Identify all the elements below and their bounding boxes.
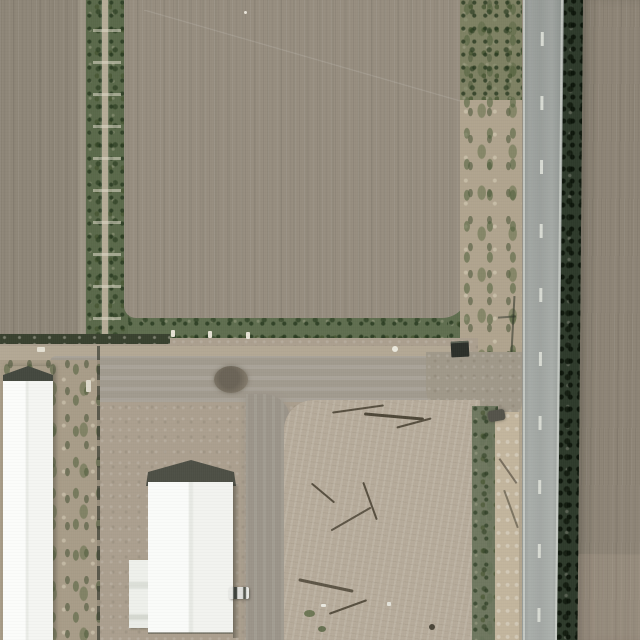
debris-twig: [332, 404, 384, 413]
standpipe: [246, 332, 250, 339]
white-post: [86, 380, 91, 392]
brush-mound: [214, 366, 248, 393]
building-south-edge: [148, 632, 233, 634]
standpipe: [171, 330, 175, 337]
aerial-photo: [0, 0, 640, 640]
farm-building: [146, 460, 236, 638]
debris-twig: [362, 482, 378, 520]
truck: [229, 587, 249, 599]
debris-twig: [298, 578, 353, 592]
white-barrel: [392, 346, 398, 352]
building-east-shadow: [233, 484, 239, 638]
debris-dark-dot: [429, 624, 435, 630]
pad-green-speck: [318, 626, 326, 632]
pad-white-speck: [387, 602, 391, 606]
scraped-pad: [284, 400, 480, 640]
barn: [3, 366, 53, 640]
ditch-line-dark: [0, 334, 170, 344]
debris-twig: [364, 412, 424, 420]
building-roof: [148, 482, 233, 633]
road-edge-line-west: [523, 0, 525, 640]
debris-twig: [331, 507, 372, 532]
irrigation-ditch: [86, 0, 128, 348]
field-central: [124, 0, 468, 318]
field-east-bottom-tint: [575, 554, 640, 640]
roadside-strip-top-green: [460, 0, 522, 100]
white-marker: [37, 347, 45, 352]
sand-strip: [495, 412, 519, 640]
pad-green-speck: [304, 610, 315, 617]
debris-twig: [329, 599, 367, 615]
field-left-light-line: [78, 0, 86, 340]
trailer: [451, 341, 470, 358]
debris-twig: [311, 483, 335, 504]
field-central-diagonal-mark: [144, 10, 474, 105]
field-east: [575, 0, 640, 640]
ditch-check-gates: [93, 0, 121, 348]
sand-twig: [503, 490, 519, 528]
barn-roof: [3, 381, 53, 640]
standpipe: [208, 331, 212, 338]
pad-white-speck: [321, 604, 326, 607]
field-central-white-speck: [244, 11, 247, 14]
fence-line: [97, 346, 100, 640]
sand-twig: [499, 458, 518, 484]
